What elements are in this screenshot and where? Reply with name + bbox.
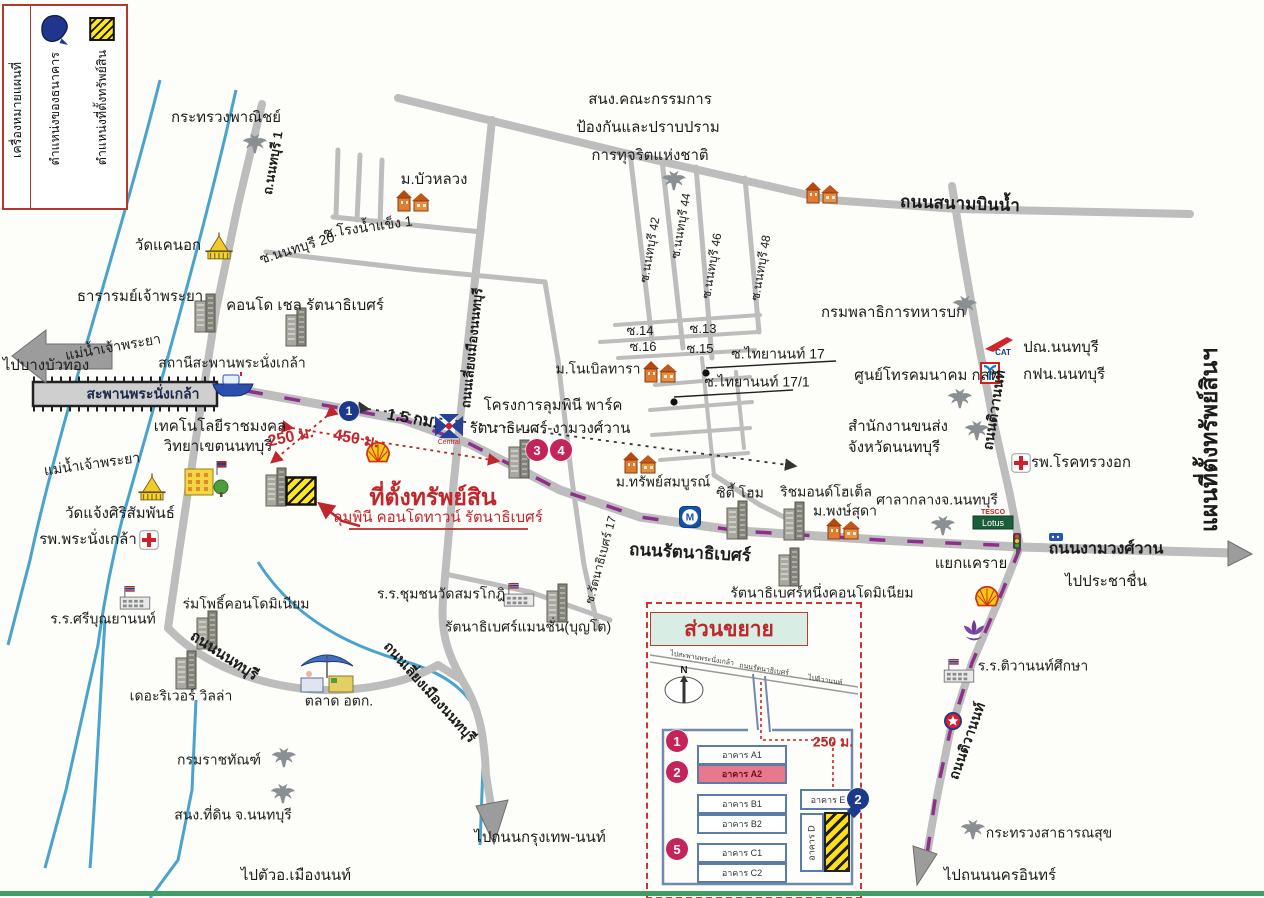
inset-title-banner: ส่วนขยาย xyxy=(650,612,808,646)
property-location-map: Central CAT M TESCOLotus อาคาร A1อาคาร A… xyxy=(0,0,1264,898)
legend-title-column: เครื่องหมายแผนที่ xyxy=(4,6,31,208)
legend-item-property-label: ตำแหน่งที่ตั้งทรัพย์สิน xyxy=(92,50,112,165)
inset-title: ส่วนขยาย xyxy=(684,613,774,646)
legend-item-property: ตำแหน่งที่ตั้งทรัพย์สิน xyxy=(79,6,127,208)
map-legend: เครื่องหมายแผนที่ ตำแหน่งของธนาคาร ตำแหน… xyxy=(2,4,128,210)
bank-marker-icon xyxy=(41,14,69,46)
phra-nang-klao-bridge xyxy=(33,379,217,409)
inset-frame xyxy=(646,602,862,898)
legend-item-bank: ตำแหน่งของธนาคาร xyxy=(31,6,79,208)
map-base-drawing: Central CAT M TESCOLotus xyxy=(0,0,1264,898)
bottom-green-rule xyxy=(0,891,1264,896)
legend-item-bank-label: ตำแหน่งของธนาคาร xyxy=(45,52,65,166)
legend-title: เครื่องหมายแผนที่ xyxy=(7,62,27,158)
property-marker-icon xyxy=(89,14,115,44)
